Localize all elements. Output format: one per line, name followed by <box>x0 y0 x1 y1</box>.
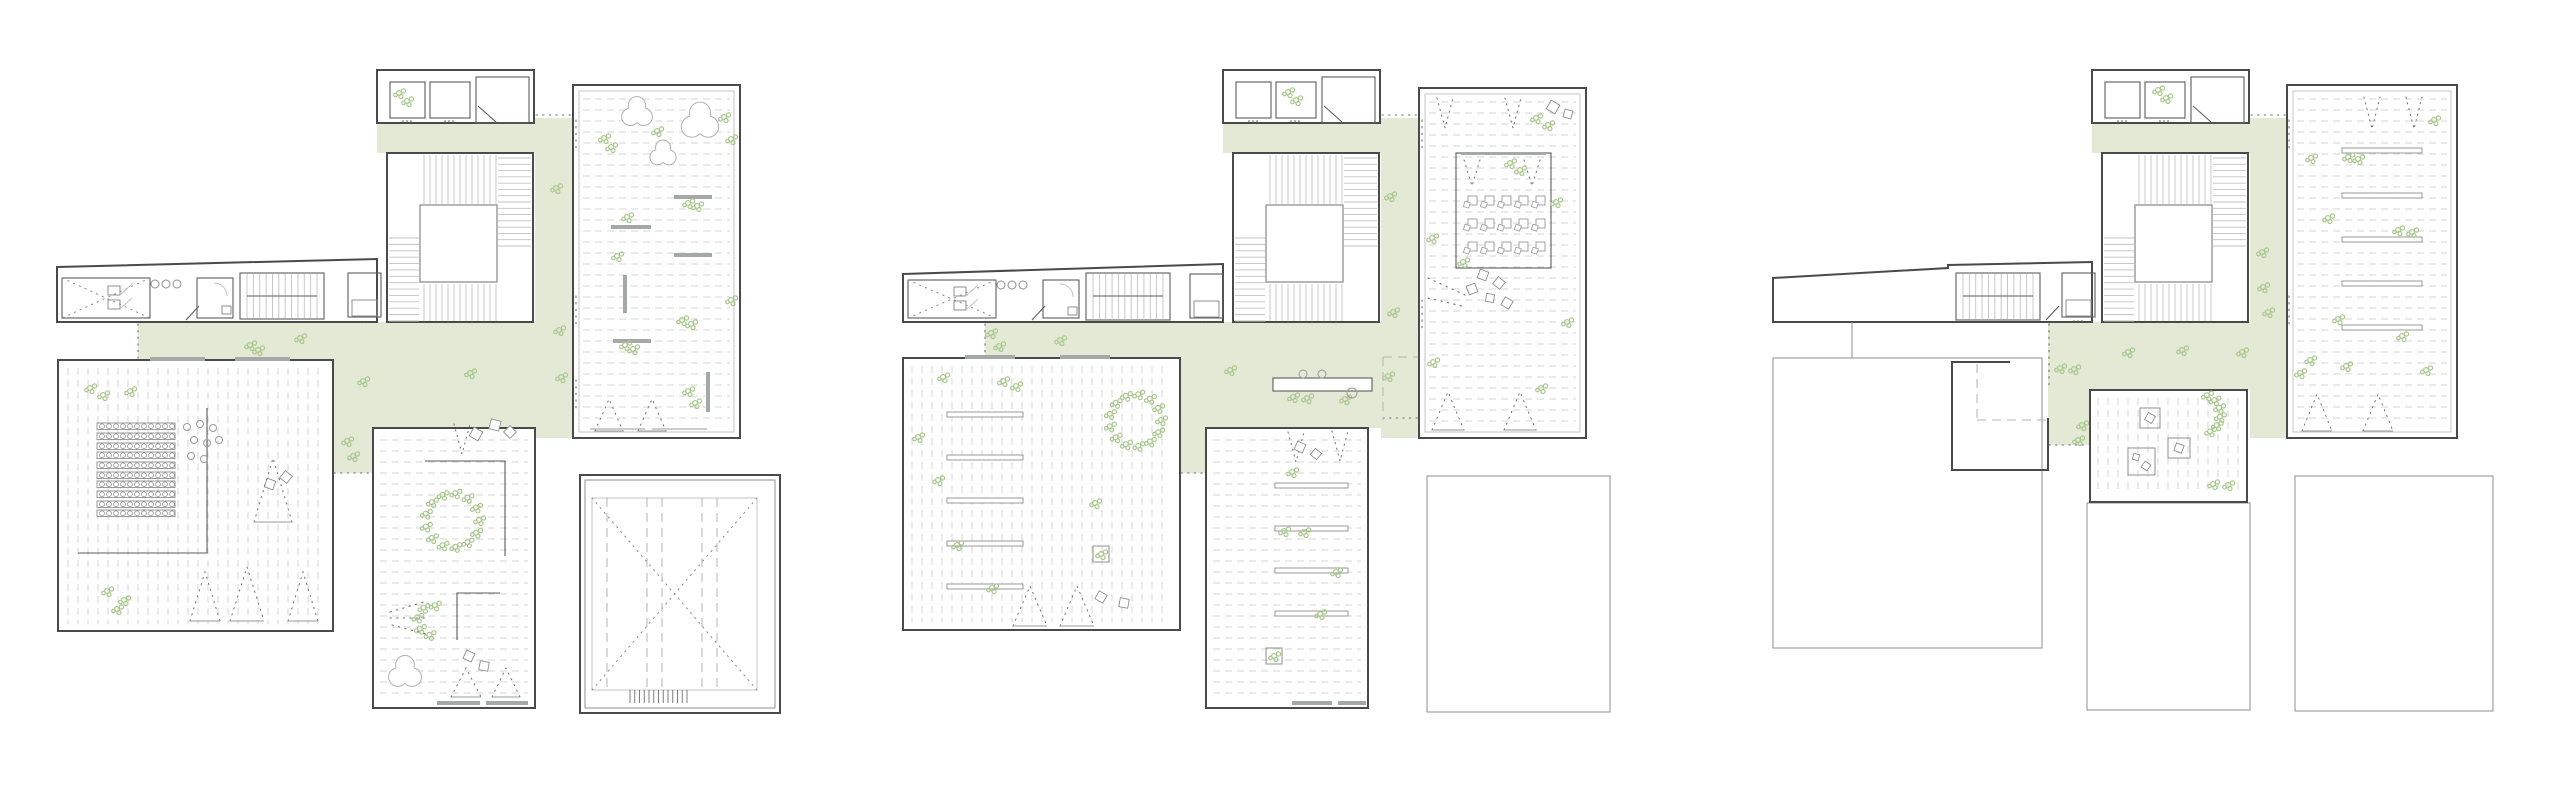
bench-outline <box>947 455 1023 460</box>
cross-dotted <box>592 498 757 690</box>
furniture-bar <box>150 357 205 361</box>
wall <box>580 475 780 713</box>
bench-outline <box>2342 148 2422 153</box>
dot <box>1248 120 1250 122</box>
chair <box>1514 247 1521 254</box>
dot <box>1290 120 1292 122</box>
furniture-bar <box>1338 701 1366 705</box>
chair <box>1480 247 1487 254</box>
wall <box>1419 88 1586 438</box>
floor-plan-2 <box>903 70 1610 712</box>
bench-outline <box>2342 193 2422 198</box>
seating-row <box>97 452 175 459</box>
chair <box>1514 224 1521 231</box>
wall <box>377 70 534 123</box>
dot <box>2117 120 2119 122</box>
blob-center <box>627 103 646 122</box>
seating-row <box>97 501 175 508</box>
room-outline <box>1773 358 2042 648</box>
dot <box>448 120 450 122</box>
blob-center <box>395 663 415 683</box>
dot <box>2081 320 2083 322</box>
dot <box>452 120 454 122</box>
dot <box>2077 320 2079 322</box>
wall-polyline <box>1952 362 2048 470</box>
bench-outline <box>947 584 1023 589</box>
furniture-bar <box>235 357 290 361</box>
furniture-bar <box>1060 355 1110 359</box>
bench-outline <box>2342 281 2422 286</box>
floor-plans-canvas <box>0 0 2560 789</box>
blob-center <box>688 110 711 133</box>
bench-outline <box>947 412 1023 417</box>
floor-plan-1 <box>57 70 780 713</box>
box-rotated <box>1119 598 1129 608</box>
green-courtyard-area <box>2250 153 2287 438</box>
seating-row <box>97 472 175 479</box>
bench-outline <box>1275 611 1348 616</box>
furniture-bar <box>623 275 627 313</box>
box-rotated <box>2132 453 2139 460</box>
room-outline <box>2295 476 2493 711</box>
seating-row <box>97 433 175 440</box>
room-outline <box>1266 205 1343 282</box>
dot <box>2125 120 2127 122</box>
furniture-bar <box>611 225 651 229</box>
dot <box>1252 120 1254 122</box>
dot <box>1298 120 1300 122</box>
chair <box>1531 224 1538 231</box>
bench-outline <box>947 498 1023 503</box>
box-rotated <box>1563 109 1573 119</box>
chair <box>1531 201 1538 208</box>
chair <box>1497 224 1504 231</box>
wall-polygon <box>1773 262 2092 322</box>
green-courtyard-area <box>1180 360 1206 473</box>
seating-row <box>97 423 175 430</box>
wall <box>2092 70 2249 123</box>
dot <box>2163 120 2165 122</box>
chair <box>1463 224 1470 231</box>
furniture-bar <box>1461 152 1546 155</box>
chair <box>1463 247 1470 254</box>
seating-row <box>97 491 175 498</box>
room-outline <box>2135 205 2212 282</box>
dot <box>359 321 361 323</box>
room-outline <box>2087 503 2250 710</box>
chair <box>1480 201 1487 208</box>
dot <box>2167 120 2169 122</box>
room-outline <box>585 480 775 708</box>
dot <box>410 120 412 122</box>
furniture-bar <box>1292 701 1332 705</box>
seating-row <box>97 462 175 469</box>
box-rotated <box>1485 293 1494 302</box>
chair <box>1497 247 1504 254</box>
bench-outline <box>2342 325 2422 330</box>
chair <box>1480 224 1487 231</box>
chair <box>1497 201 1504 208</box>
chair <box>1463 201 1470 208</box>
box-rotated <box>479 661 489 671</box>
furniture-bar <box>706 372 710 412</box>
wall-polygon <box>57 259 377 322</box>
hatch-strip <box>630 690 687 703</box>
dot <box>1209 321 1211 323</box>
bench-outline <box>2342 237 2422 242</box>
furniture-bar <box>965 355 1015 359</box>
seating-row <box>97 510 175 517</box>
chair <box>1514 201 1521 208</box>
dot <box>363 321 365 323</box>
seating-row <box>97 443 175 450</box>
dot <box>367 321 369 323</box>
dot <box>2159 120 2161 122</box>
chair <box>1531 247 1538 254</box>
architectural-drawing-sheet <box>0 0 2560 789</box>
dot <box>444 120 446 122</box>
furniture-bar <box>437 701 480 705</box>
room-outline <box>1273 378 1372 391</box>
floor-plan-3 <box>1773 70 2493 711</box>
bench-outline <box>1275 483 1348 488</box>
dot <box>2121 120 2123 122</box>
green-courtyard-area <box>985 322 1419 360</box>
dot <box>402 120 404 122</box>
seating-row <box>97 481 175 488</box>
dot <box>1201 321 1203 323</box>
dot <box>1256 120 1258 122</box>
furniture-bar <box>486 701 528 705</box>
dot <box>1294 120 1296 122</box>
green-courtyard-area <box>138 322 573 360</box>
box-rotated <box>489 419 501 431</box>
room-outline <box>420 205 497 282</box>
dot <box>406 120 408 122</box>
dot <box>1205 321 1207 323</box>
room-outline <box>1427 476 1610 712</box>
furniture-bar <box>674 253 712 257</box>
green-courtyard-area <box>2048 322 2287 390</box>
dot <box>2073 320 2075 322</box>
wall-polygon <box>903 264 1223 322</box>
blob-center <box>655 146 671 162</box>
